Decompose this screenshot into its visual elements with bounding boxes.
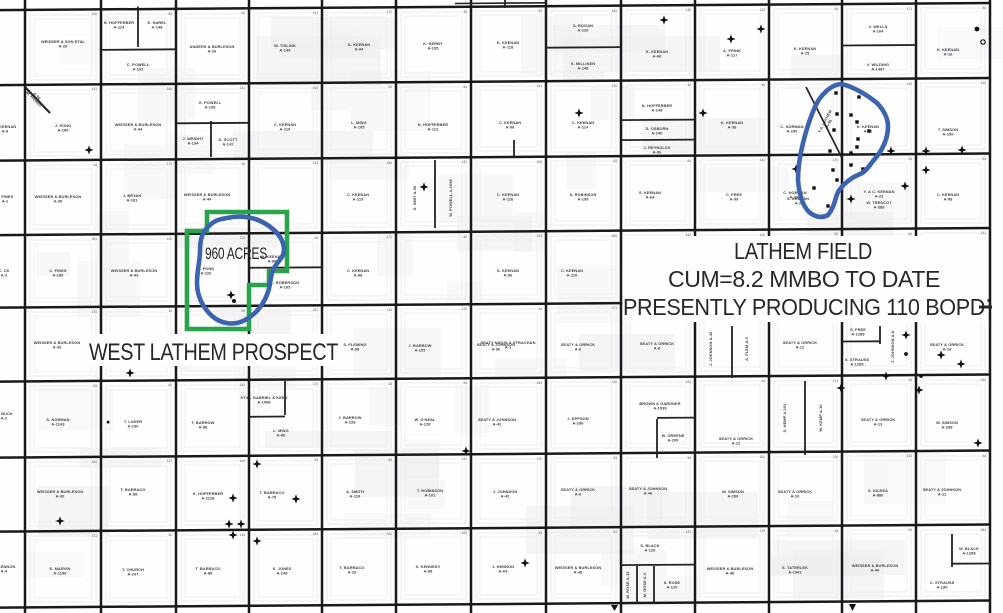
svg-text:170: 170 bbox=[760, 529, 766, 533]
svg-text:170: 170 bbox=[313, 382, 319, 386]
svg-text:A-12: A-12 bbox=[796, 345, 806, 350]
svg-text:A-98: A-98 bbox=[354, 273, 364, 278]
svg-text:A-38: A-38 bbox=[728, 125, 738, 130]
svg-text:33: 33 bbox=[834, 529, 838, 533]
svg-text:M. ROSE A-9: M. ROSE A-9 bbox=[642, 572, 647, 597]
svg-text:170: 170 bbox=[537, 457, 543, 461]
svg-text:33: 33 bbox=[687, 83, 691, 87]
svg-text:181: 181 bbox=[92, 237, 98, 241]
svg-text:A-1487: A-1487 bbox=[871, 67, 884, 72]
svg-text:143: 143 bbox=[537, 234, 543, 238]
svg-text:53: 53 bbox=[538, 531, 542, 535]
svg-text:53: 53 bbox=[388, 85, 392, 89]
svg-text:J. JOHNSON A-42: J. JOHNSON A-42 bbox=[708, 331, 713, 366]
svg-text:A-9: A-9 bbox=[2, 129, 9, 134]
svg-text:A-48: A-48 bbox=[574, 570, 584, 575]
svg-text:A-1288: A-1288 bbox=[851, 332, 865, 337]
svg-text:A-119: A-119 bbox=[350, 494, 362, 499]
svg-text:53: 53 bbox=[834, 232, 838, 236]
svg-text:33: 33 bbox=[613, 456, 617, 460]
svg-text:53: 53 bbox=[314, 458, 318, 462]
svg-text:A-11: A-11 bbox=[938, 492, 947, 497]
svg-text:A-247: A-247 bbox=[127, 572, 138, 577]
svg-text:A-119: A-119 bbox=[280, 127, 292, 132]
svg-text:A-6: A-6 bbox=[575, 492, 582, 497]
svg-text:A-4: A-4 bbox=[1, 569, 8, 574]
svg-text:110: 110 bbox=[686, 8, 691, 12]
svg-text:A-288: A-288 bbox=[941, 425, 953, 430]
svg-text:100: 100 bbox=[240, 459, 246, 463]
svg-text:A-298: A-298 bbox=[727, 494, 739, 499]
svg-text:A-98: A-98 bbox=[944, 197, 954, 202]
svg-text:A-114: A-114 bbox=[578, 125, 590, 130]
svg-text:A-886: A-886 bbox=[872, 493, 884, 498]
svg-text:A-116: A-116 bbox=[503, 197, 515, 202]
svg-text:143: 143 bbox=[240, 533, 246, 537]
svg-text:A-44: A-44 bbox=[134, 127, 144, 132]
svg-text:100: 100 bbox=[537, 160, 543, 164]
svg-text:A-148: A-148 bbox=[577, 66, 589, 71]
svg-text:A-190: A-190 bbox=[936, 585, 947, 590]
svg-text:110: 110 bbox=[167, 237, 172, 241]
svg-text:123: 123 bbox=[462, 307, 468, 311]
svg-text:S. SMIT A-96: S. SMIT A-96 bbox=[412, 185, 417, 210]
svg-text:A-148: A-148 bbox=[151, 25, 163, 30]
svg-text:171: 171 bbox=[907, 7, 913, 11]
svg-text:A-190: A-190 bbox=[942, 132, 953, 137]
svg-text:A-26: A-26 bbox=[59, 44, 69, 49]
svg-text:64: 64 bbox=[168, 383, 172, 387]
svg-text:A-44: A-44 bbox=[871, 568, 881, 573]
svg-text:131: 131 bbox=[387, 532, 393, 536]
svg-text:A-15: A-15 bbox=[801, 51, 811, 56]
svg-text:A-140: A-140 bbox=[651, 131, 662, 136]
svg-text:A-96: A-96 bbox=[492, 347, 502, 352]
svg-text:131: 131 bbox=[240, 86, 246, 90]
svg-text:A-290: A-290 bbox=[786, 129, 797, 134]
svg-text:A-1: A-1 bbox=[2, 199, 9, 204]
svg-text:40: 40 bbox=[908, 378, 912, 382]
svg-text:CUM=8.2 MMBO TO DATE: CUM=8.2 MMBO TO DATE bbox=[668, 266, 940, 292]
svg-text:94: 94 bbox=[982, 157, 986, 161]
svg-text:100: 100 bbox=[462, 531, 468, 535]
svg-text:A-44: A-44 bbox=[203, 197, 213, 202]
svg-text:A-1039: A-1039 bbox=[653, 406, 667, 411]
svg-text:170: 170 bbox=[92, 310, 98, 314]
svg-text:A-112: A-112 bbox=[428, 127, 440, 132]
svg-text:A-88: A-88 bbox=[129, 492, 139, 497]
svg-text:A-78: A-78 bbox=[268, 495, 278, 500]
svg-text:A-105: A-105 bbox=[427, 46, 439, 51]
svg-text:141: 141 bbox=[760, 158, 766, 162]
svg-text:A-105: A-105 bbox=[414, 348, 426, 353]
svg-text:33: 33 bbox=[388, 382, 392, 386]
svg-text:94: 94 bbox=[761, 83, 765, 87]
svg-text:44: 44 bbox=[982, 454, 986, 458]
svg-text:A-1289: A-1289 bbox=[850, 362, 864, 367]
svg-text:A-1128: A-1128 bbox=[201, 496, 215, 501]
svg-text:A-42: A-42 bbox=[493, 422, 503, 427]
svg-text:64: 64 bbox=[613, 530, 617, 534]
svg-text:94: 94 bbox=[687, 456, 691, 460]
svg-text:A-126: A-126 bbox=[644, 548, 656, 553]
svg-text:A-180: A-180 bbox=[52, 273, 63, 278]
svg-text:40: 40 bbox=[168, 533, 172, 537]
svg-text:A-42: A-42 bbox=[501, 494, 511, 499]
svg-text:A-30: A-30 bbox=[54, 199, 63, 204]
svg-text:184: 184 bbox=[313, 532, 319, 536]
svg-text:94: 94 bbox=[241, 309, 245, 313]
svg-text:171: 171 bbox=[612, 306, 618, 310]
svg-text:110: 110 bbox=[907, 82, 912, 86]
svg-text:171: 171 bbox=[167, 162, 173, 166]
svg-text:33: 33 bbox=[168, 309, 172, 313]
svg-text:170: 170 bbox=[612, 84, 618, 88]
svg-text:A-105: A-105 bbox=[353, 125, 365, 130]
svg-text:A-88: A-88 bbox=[199, 425, 209, 430]
svg-text:A-119: A-119 bbox=[353, 197, 365, 202]
svg-text:123: 123 bbox=[686, 380, 692, 384]
svg-text:141: 141 bbox=[313, 11, 319, 15]
svg-text:A-96: A-96 bbox=[653, 150, 663, 155]
svg-text:A-98: A-98 bbox=[351, 347, 361, 352]
svg-text:110: 110 bbox=[612, 380, 617, 384]
svg-text:A-1143: A-1143 bbox=[51, 422, 65, 427]
svg-text:44: 44 bbox=[834, 7, 838, 11]
svg-text:141: 141 bbox=[686, 530, 692, 534]
svg-text:A-127: A-127 bbox=[726, 53, 737, 58]
svg-text:181: 181 bbox=[612, 9, 618, 13]
svg-text:A-13: A-13 bbox=[874, 422, 884, 427]
svg-text:123: 123 bbox=[240, 236, 246, 240]
svg-text:A-64: A-64 bbox=[646, 195, 656, 200]
svg-text:A-16: A-16 bbox=[943, 347, 953, 352]
svg-text:A-108: A-108 bbox=[204, 105, 216, 110]
svg-text:A-99: A-99 bbox=[730, 197, 740, 202]
svg-text:100: 100 bbox=[313, 86, 319, 90]
svg-text:44: 44 bbox=[93, 163, 97, 167]
svg-text:A-12: A-12 bbox=[732, 441, 742, 446]
svg-text:A-209: A-209 bbox=[667, 438, 679, 443]
svg-text:141: 141 bbox=[462, 457, 468, 461]
svg-text:A-29: A-29 bbox=[348, 570, 358, 575]
svg-text:A-3: A-3 bbox=[1, 273, 8, 278]
svg-text:WEST LATHEM PROSPECT: WEST LATHEM PROSPECT bbox=[89, 339, 339, 366]
svg-text:A-30: A-30 bbox=[53, 345, 62, 350]
svg-text:A-149: A-149 bbox=[279, 48, 291, 53]
svg-text:181: 181 bbox=[760, 455, 766, 459]
svg-text:33: 33 bbox=[908, 157, 912, 161]
svg-text:A-1: A-1 bbox=[505, 345, 512, 350]
svg-text:A-118: A-118 bbox=[503, 45, 515, 50]
svg-text:A-94: A-94 bbox=[355, 47, 365, 52]
svg-text:A-98: A-98 bbox=[424, 569, 434, 574]
svg-text:A-128: A-128 bbox=[344, 420, 356, 425]
svg-text:W. POWELL A-1098: W. POWELL A-1098 bbox=[448, 179, 453, 217]
svg-text:A-181: A-181 bbox=[126, 198, 138, 203]
svg-text:A-30: A-30 bbox=[56, 494, 65, 499]
svg-text:A-190: A-190 bbox=[127, 424, 138, 429]
svg-text:64: 64 bbox=[687, 159, 691, 163]
svg-text:40: 40 bbox=[463, 235, 467, 239]
svg-text:123: 123 bbox=[907, 454, 913, 458]
svg-text:53: 53 bbox=[613, 159, 617, 163]
svg-text:960 ACRES: 960 ACRES bbox=[205, 244, 267, 263]
svg-text:A. FLEM A-9: A. FLEM A-9 bbox=[744, 336, 749, 361]
svg-text:110: 110 bbox=[833, 455, 838, 459]
svg-text:LATHEM FIELD: LATHEM FIELD bbox=[734, 238, 872, 264]
svg-text:184: 184 bbox=[92, 460, 98, 464]
svg-text:A-6: A-6 bbox=[575, 347, 582, 352]
svg-text:A-126: A-126 bbox=[577, 28, 589, 33]
svg-text:A-134: A-134 bbox=[187, 141, 199, 146]
svg-text:A-43: A-43 bbox=[130, 273, 140, 278]
svg-text:171: 171 bbox=[92, 534, 98, 538]
svg-text:A-142: A-142 bbox=[222, 142, 234, 147]
svg-text:64: 64 bbox=[463, 85, 467, 89]
svg-text:J. JOHNSON A-8: J. JOHNSON A-8 bbox=[890, 330, 895, 363]
svg-text:131: 131 bbox=[167, 459, 173, 463]
svg-text:A-2: A-2 bbox=[1, 416, 8, 421]
svg-text:A-96: A-96 bbox=[506, 125, 516, 130]
svg-text:S. HEMP A-101: S. HEMP A-101 bbox=[782, 403, 787, 432]
svg-text:A-1288: A-1288 bbox=[962, 551, 976, 556]
svg-text:53: 53 bbox=[168, 12, 172, 16]
svg-text:A-128: A-128 bbox=[419, 422, 431, 427]
svg-text:141: 141 bbox=[981, 231, 987, 235]
svg-text:A-199: A-199 bbox=[577, 197, 589, 202]
svg-text:53: 53 bbox=[93, 384, 97, 388]
svg-text:170: 170 bbox=[833, 158, 839, 162]
svg-text:W. ROSE A-12: W. ROSE A-12 bbox=[625, 571, 630, 599]
svg-text:110: 110 bbox=[387, 308, 392, 312]
svg-text:A-105: A-105 bbox=[279, 285, 291, 290]
svg-text:A-80: A-80 bbox=[277, 433, 286, 438]
svg-text:123: 123 bbox=[760, 8, 766, 12]
svg-text:A-66: A-66 bbox=[653, 54, 663, 59]
svg-text:94: 94 bbox=[538, 9, 542, 13]
svg-text:143: 143 bbox=[313, 161, 319, 165]
svg-text:64: 64 bbox=[908, 232, 912, 236]
svg-text:A-88: A-88 bbox=[204, 571, 214, 576]
svg-text:A-96: A-96 bbox=[504, 273, 514, 278]
svg-text:A-148: A-148 bbox=[651, 108, 663, 113]
svg-text:94: 94 bbox=[463, 381, 467, 385]
svg-text:40: 40 bbox=[982, 6, 986, 10]
svg-text:A-1088: A-1088 bbox=[257, 400, 271, 405]
svg-text:PRESENTLY PRODUCING 110 BOPD: PRESENTLY PRODUCING 110 BOPD bbox=[623, 294, 985, 320]
svg-text:64: 64 bbox=[388, 458, 392, 462]
svg-text:A-101: A-101 bbox=[424, 493, 436, 498]
svg-text:A-1041: A-1041 bbox=[788, 570, 802, 575]
svg-text:A-23: A-23 bbox=[875, 194, 885, 199]
svg-text:A-46: A-46 bbox=[726, 571, 736, 576]
svg-text:A-180: A-180 bbox=[57, 128, 68, 133]
svg-text:171: 171 bbox=[833, 379, 839, 383]
svg-text:A-110: A-110 bbox=[567, 273, 578, 278]
svg-text:184: 184 bbox=[612, 234, 618, 238]
svg-text:181: 181 bbox=[313, 308, 319, 312]
svg-text:A-8: A-8 bbox=[654, 346, 661, 351]
svg-text:33: 33 bbox=[463, 10, 467, 14]
svg-text:A-1196: A-1196 bbox=[53, 571, 67, 576]
svg-text:184: 184 bbox=[387, 161, 393, 165]
svg-text:171: 171 bbox=[387, 235, 393, 239]
svg-text:A-388: A-388 bbox=[873, 205, 885, 210]
svg-text:A-162: A-162 bbox=[132, 67, 144, 72]
svg-text:181: 181 bbox=[981, 528, 987, 532]
svg-text:143: 143 bbox=[981, 378, 987, 382]
svg-text:123: 123 bbox=[981, 81, 987, 85]
svg-text:141: 141 bbox=[537, 84, 543, 88]
svg-text:170: 170 bbox=[387, 10, 393, 14]
svg-text:A-46: A-46 bbox=[644, 491, 654, 496]
svg-text:143: 143 bbox=[92, 87, 98, 91]
svg-text:131: 131 bbox=[462, 160, 468, 164]
svg-text:W. KEMP A-10: W. KEMP A-10 bbox=[818, 404, 823, 431]
svg-text:A-220: A-220 bbox=[200, 271, 211, 276]
svg-text:A-10: A-10 bbox=[791, 494, 800, 499]
svg-text:A-64: A-64 bbox=[499, 569, 509, 574]
svg-text:44: 44 bbox=[538, 307, 542, 311]
svg-text:40: 40 bbox=[241, 162, 245, 166]
svg-text:A-16: A-16 bbox=[944, 52, 954, 57]
svg-text:184: 184 bbox=[167, 87, 173, 91]
svg-text:A-164: A-164 bbox=[872, 29, 884, 34]
svg-text:44: 44 bbox=[314, 236, 318, 240]
svg-text:A-296: A-296 bbox=[572, 421, 584, 426]
svg-text:A-120: A-120 bbox=[666, 585, 677, 590]
svg-text:A-26: A-26 bbox=[208, 49, 218, 54]
svg-text:181: 181 bbox=[537, 381, 543, 385]
svg-text:A-248: A-248 bbox=[276, 571, 288, 576]
svg-text:A-114: A-114 bbox=[114, 25, 126, 30]
svg-text:94: 94 bbox=[908, 528, 912, 532]
svg-text:141: 141 bbox=[240, 383, 246, 387]
svg-text:100: 100 bbox=[92, 12, 98, 16]
svg-text:64: 64 bbox=[241, 11, 245, 15]
svg-text:44: 44 bbox=[761, 379, 765, 383]
